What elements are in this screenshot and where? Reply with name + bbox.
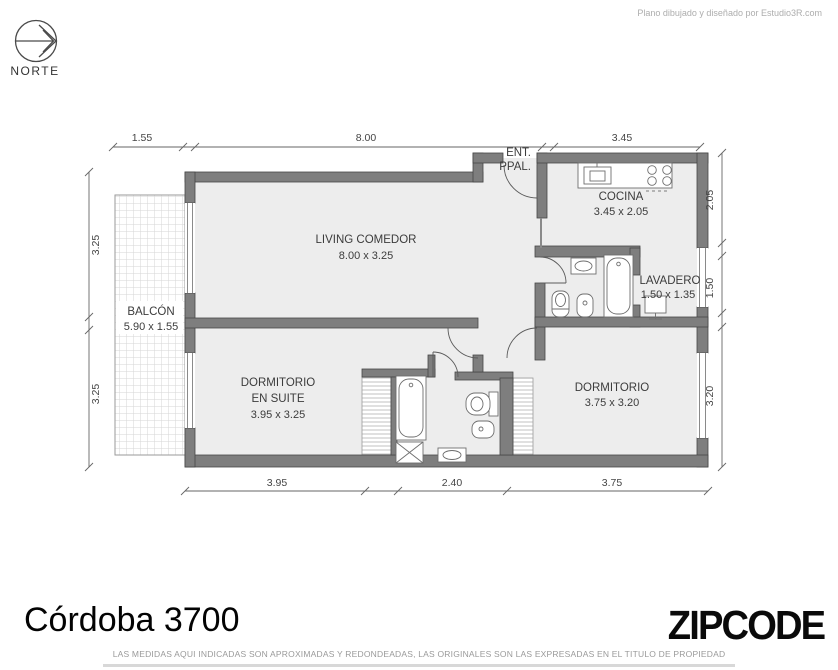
- dim-right-cocina: 2.05: [704, 190, 716, 211]
- credit-text: Plano dibujado y diseñado por Estudio3R.…: [637, 8, 822, 18]
- room-label-suite-1: DORMITORIO: [241, 377, 316, 389]
- room-label-suite-2: EN SUITE: [251, 393, 304, 405]
- dim-bottom-suite: 3.95: [267, 477, 288, 489]
- room-label-cocina: COCINA: [599, 191, 644, 203]
- bathtub-icon: [604, 255, 633, 317]
- north-label: NORTE: [10, 64, 59, 78]
- page-title: Córdoba 3700: [24, 601, 240, 640]
- disclaimer-text: LAS MEDIDAS AQUI INDICADAS SON APROXIMAD…: [0, 649, 838, 659]
- room-size-suite: 3.95 x 3.25: [251, 409, 305, 421]
- room-label-living: LIVING COMEDOR: [316, 234, 417, 246]
- dim-right-lavadero: 1.50: [704, 278, 716, 299]
- floorplan-drawing: NORTE: [0, 0, 838, 670]
- shower-icon: [396, 442, 423, 463]
- room-size-dormitorio: 3.75 x 3.20: [585, 397, 639, 409]
- dim-bottom-dorm: 3.75: [602, 477, 623, 489]
- room-label-dormitorio: DORMITORIO: [575, 382, 650, 394]
- dim-right-dorm: 3.20: [704, 386, 716, 407]
- room-label-lavadero: LAVADERO: [640, 275, 701, 287]
- suite-bathtub-icon: [396, 376, 426, 440]
- entrance-label-2: PPAL.: [499, 161, 531, 173]
- dim-bottom-bath: 2.40: [442, 477, 463, 489]
- entrance-label-1: ENT.: [506, 147, 531, 159]
- dim-top-balcony: 1.55: [132, 132, 153, 144]
- room-label-balcon: BALCÓN: [127, 305, 174, 318]
- dim-top-cocina: 3.45: [612, 132, 633, 144]
- dim-top-living: 8.00: [356, 132, 377, 144]
- dim-left-living: 3.25: [90, 235, 102, 256]
- floorplan-page: NORTE: [0, 0, 838, 670]
- zipcode-logo: ZIPCODE: [668, 602, 824, 649]
- room-size-living: 8.00 x 3.25: [339, 250, 393, 262]
- room-size-balcon: 5.90 x 1.55: [124, 321, 178, 333]
- bidet-icon: [577, 294, 593, 317]
- room-size-lavadero: 1.50 x 1.35: [641, 289, 695, 301]
- footer-divider: [103, 664, 735, 667]
- north-arrow-icon: [16, 21, 57, 62]
- room-size-cocina: 3.45 x 2.05: [594, 206, 648, 218]
- dim-left-suite: 3.25: [90, 384, 102, 405]
